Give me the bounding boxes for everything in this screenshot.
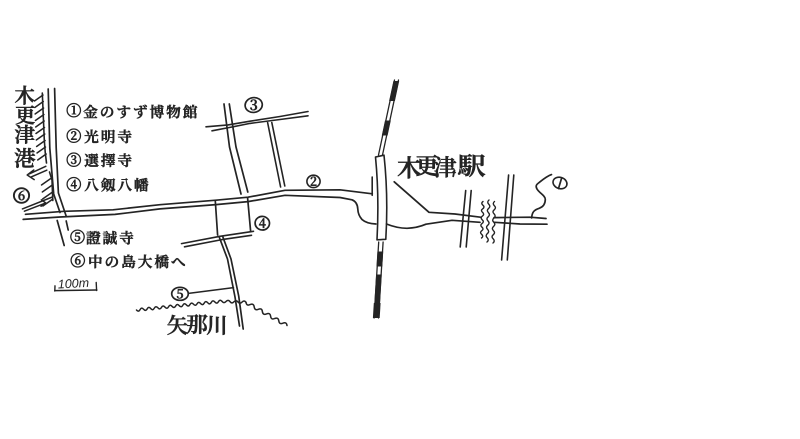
svg-text:100m: 100m [57, 276, 89, 292]
